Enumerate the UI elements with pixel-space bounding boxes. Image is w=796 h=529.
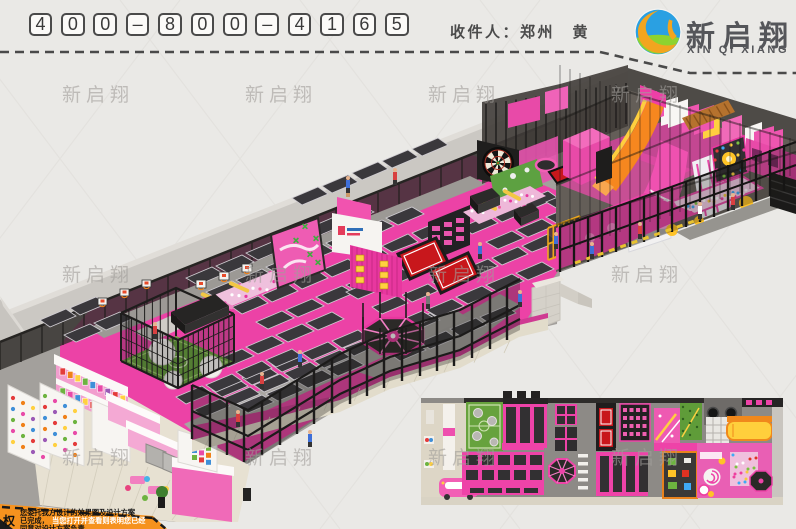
svg-text:已完成，: 已完成， [20, 516, 49, 525]
svg-text:权: 权 [2, 513, 16, 528]
svg-text:您委托我方设计的效果图及设计方案: 您委托我方设计的效果图及设计方案 [20, 508, 136, 517]
svg-text:同意对设计方案负责: 同意对设计方案负责 [20, 524, 85, 529]
svg-text:当您打开并查看则表明您已经: 当您打开并查看则表明您已经 [52, 516, 146, 525]
